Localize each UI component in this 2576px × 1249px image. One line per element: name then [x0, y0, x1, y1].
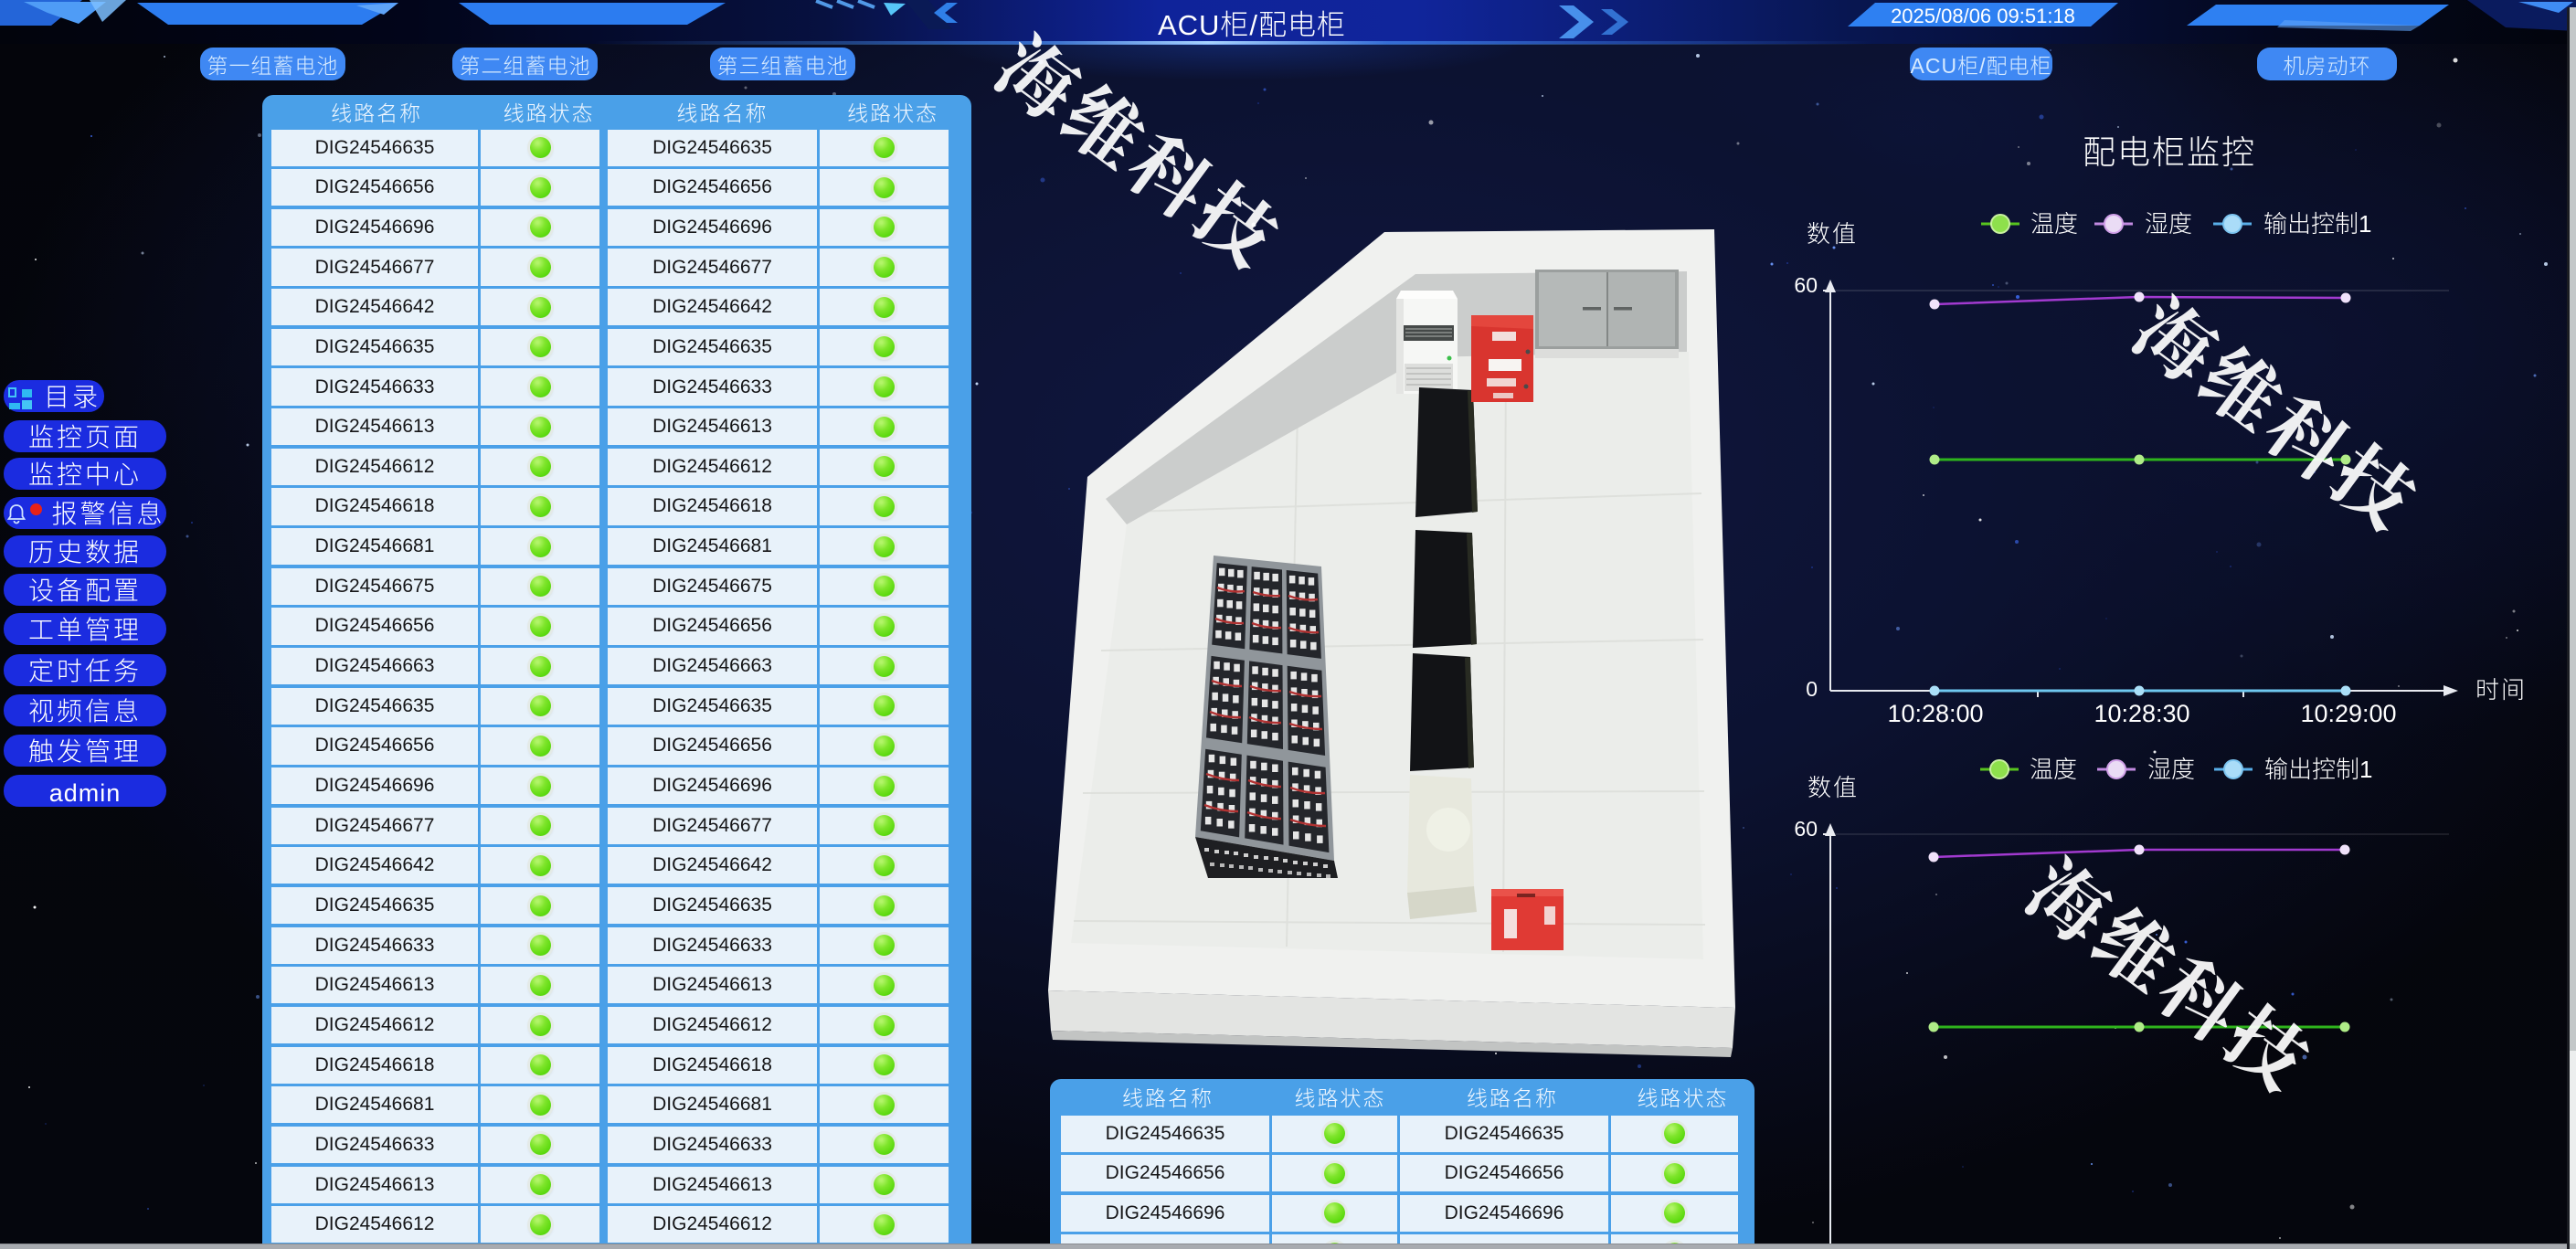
svg-text:温度: 温度	[2030, 206, 2078, 239]
svg-text:输出控制1: 输出控制1	[2264, 751, 2372, 785]
svg-text:湿度: 湿度	[2147, 751, 2195, 785]
svg-text:0: 0	[1806, 672, 1818, 703]
svg-text:10:28:30: 10:28:30	[2094, 700, 2189, 727]
svg-text:数值: 数值	[1807, 769, 1859, 803]
svg-text:10:28:00: 10:28:00	[1887, 700, 1983, 727]
svg-text:10:29:00: 10:29:00	[2300, 700, 2396, 727]
svg-text:数值: 数值	[1807, 216, 1858, 249]
svg-text:温度: 温度	[2030, 751, 2077, 785]
svg-text:湿度: 湿度	[2145, 206, 2192, 239]
svg-text:时间: 时间	[2475, 672, 2527, 705]
svg-text:60: 60	[1794, 268, 1818, 299]
svg-text:60: 60	[1794, 811, 1818, 842]
svg-text:配电柜监控: 配电柜监控	[2083, 126, 2256, 174]
svg-text:输出控制1: 输出控制1	[2263, 206, 2371, 239]
